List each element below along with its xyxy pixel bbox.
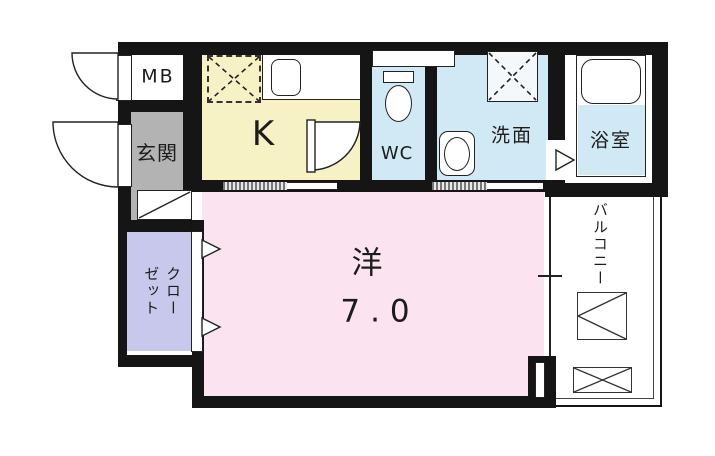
toilet-bowl bbox=[385, 85, 412, 122]
entrance-label: 玄関 bbox=[136, 143, 178, 163]
mb-door-arc bbox=[72, 53, 118, 99]
bathroom-door-opening bbox=[546, 140, 565, 180]
wall-room-bottom bbox=[192, 396, 556, 408]
wall-entry-kitchen bbox=[183, 42, 202, 192]
washroom-label: 洗面 bbox=[491, 127, 533, 146]
balcony-label: バルコニー bbox=[590, 202, 610, 314]
closet-label: クローゼット bbox=[137, 262, 183, 320]
kitchen-sliding-door bbox=[223, 182, 287, 190]
mb-door-opening bbox=[116, 55, 132, 101]
wall-mb-divider bbox=[126, 100, 186, 112]
balcony-inner-line-v bbox=[653, 197, 654, 399]
wall-closet-left bbox=[118, 220, 127, 367]
window-stub-slot bbox=[535, 362, 545, 398]
balcony-drain-box bbox=[573, 367, 632, 393]
kitchen-sink bbox=[271, 59, 301, 96]
entrance-step bbox=[137, 190, 192, 220]
wc-label: WC bbox=[381, 145, 413, 163]
kitchen-sliding-opening bbox=[287, 182, 337, 190]
wall-bath-balcony bbox=[545, 183, 668, 197]
bathtub bbox=[581, 59, 641, 104]
washroom-sliding-door bbox=[432, 182, 487, 190]
washroom-sink-bowl bbox=[444, 137, 470, 171]
entrance-door-opening bbox=[116, 124, 132, 187]
bathroom-label: 浴室 bbox=[590, 132, 632, 151]
toilet-tank bbox=[383, 71, 414, 83]
refrigerator-space bbox=[207, 55, 261, 103]
washroom-sliding-opening bbox=[487, 182, 543, 190]
balcony-inner-line-h bbox=[556, 398, 654, 399]
closet-door-panel bbox=[191, 231, 203, 352]
wall-wc-washroom bbox=[425, 66, 437, 180]
entrance-door-arc bbox=[53, 122, 118, 187]
main-room-label: 洋 bbox=[352, 249, 383, 280]
wall-kitchen-wc bbox=[360, 42, 372, 192]
wall-right-outer bbox=[652, 42, 668, 197]
mb-label: MB bbox=[141, 68, 174, 87]
kitchen-label: K bbox=[252, 117, 274, 151]
balcony-window-tick bbox=[538, 275, 562, 277]
main-room-size: 7.0 bbox=[340, 297, 419, 328]
wc-upper-cabinet bbox=[372, 50, 455, 67]
floor-plan: MB 玄関 K WC 洗面 浴室 洋 7.0 クローゼット バルコニー bbox=[0, 0, 715, 456]
washing-machine-space bbox=[487, 51, 538, 102]
